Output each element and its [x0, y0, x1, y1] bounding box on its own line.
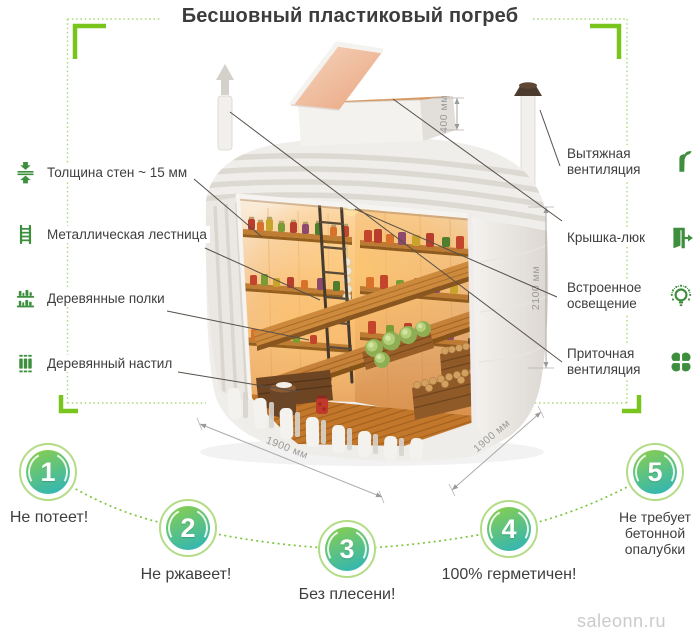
feature-label-5: Не требует бетонной опалубки [607, 509, 700, 557]
callout-wall-thickness: Толщина стен ~ 15 мм [14, 161, 190, 184]
shelves-icon [14, 287, 37, 310]
callout-label: Вытяжная вентиляция [564, 145, 658, 180]
feature-label-3: Без плесени! [290, 586, 404, 604]
callout-label: Встроенное освещение [564, 279, 658, 314]
decking-icon [14, 352, 37, 375]
feature-circle-3: 3 [318, 520, 376, 578]
ladder-icon [14, 223, 37, 246]
callout-metal-ladder: Металлическая лестница [14, 223, 210, 246]
feature-number: 1 [40, 457, 55, 488]
page-title: Бесшовный пластиковый погреб [0, 5, 700, 28]
tomato-jar [316, 396, 328, 415]
feature-label-1: Не потеет! [2, 509, 96, 527]
callout-built-in-lighting: Встроенное освещение [564, 279, 694, 314]
callout-label: Металлическая лестница [44, 226, 210, 243]
feature-number: 2 [180, 513, 195, 544]
lighting-icon [668, 283, 694, 309]
callout-wooden-decking: Деревянный настил [14, 352, 175, 375]
hatch-icon [668, 225, 694, 251]
feature-circle-5: 5 [626, 443, 684, 501]
supply-pipe [216, 64, 234, 150]
feature-circle-4: 4 [480, 500, 538, 558]
callout-label: Деревянный настил [44, 355, 175, 372]
infographic-poster: 400 мм 2100 мм 1900 мм 1900 мм Бесшовный… [0, 0, 700, 640]
callout-supply-vent: Приточная вентиляция [564, 345, 694, 380]
callout-hatch-lid: Крышка-люк [564, 225, 694, 251]
site-watermark: saleonn.ru [577, 611, 666, 632]
exhaust-vent-icon [668, 149, 694, 175]
feature-circle-2: 2 [159, 499, 217, 557]
callout-wooden-shelves: Деревянные полки [14, 287, 168, 310]
callout-label: Толщина стен ~ 15 мм [44, 164, 190, 181]
callout-exhaust-vent: Вытяжная вентиляция [564, 145, 694, 180]
supply-vent-icon [668, 349, 694, 375]
feature-label-4: 100% герметичен! [434, 566, 584, 584]
feature-circle-1: 1 [19, 443, 77, 501]
feature-label-2: Не ржавеет! [131, 566, 241, 584]
dimension-lid-height: 400 мм [438, 95, 450, 133]
feature-number: 3 [339, 534, 354, 565]
callout-label: Деревянные полки [44, 290, 168, 307]
callout-label: Приточная вентиляция [564, 345, 658, 380]
feature-number: 5 [647, 457, 662, 488]
callout-label: Крышка-люк [564, 229, 658, 247]
wall-thickness-icon [14, 161, 37, 184]
feature-number: 4 [501, 514, 516, 545]
